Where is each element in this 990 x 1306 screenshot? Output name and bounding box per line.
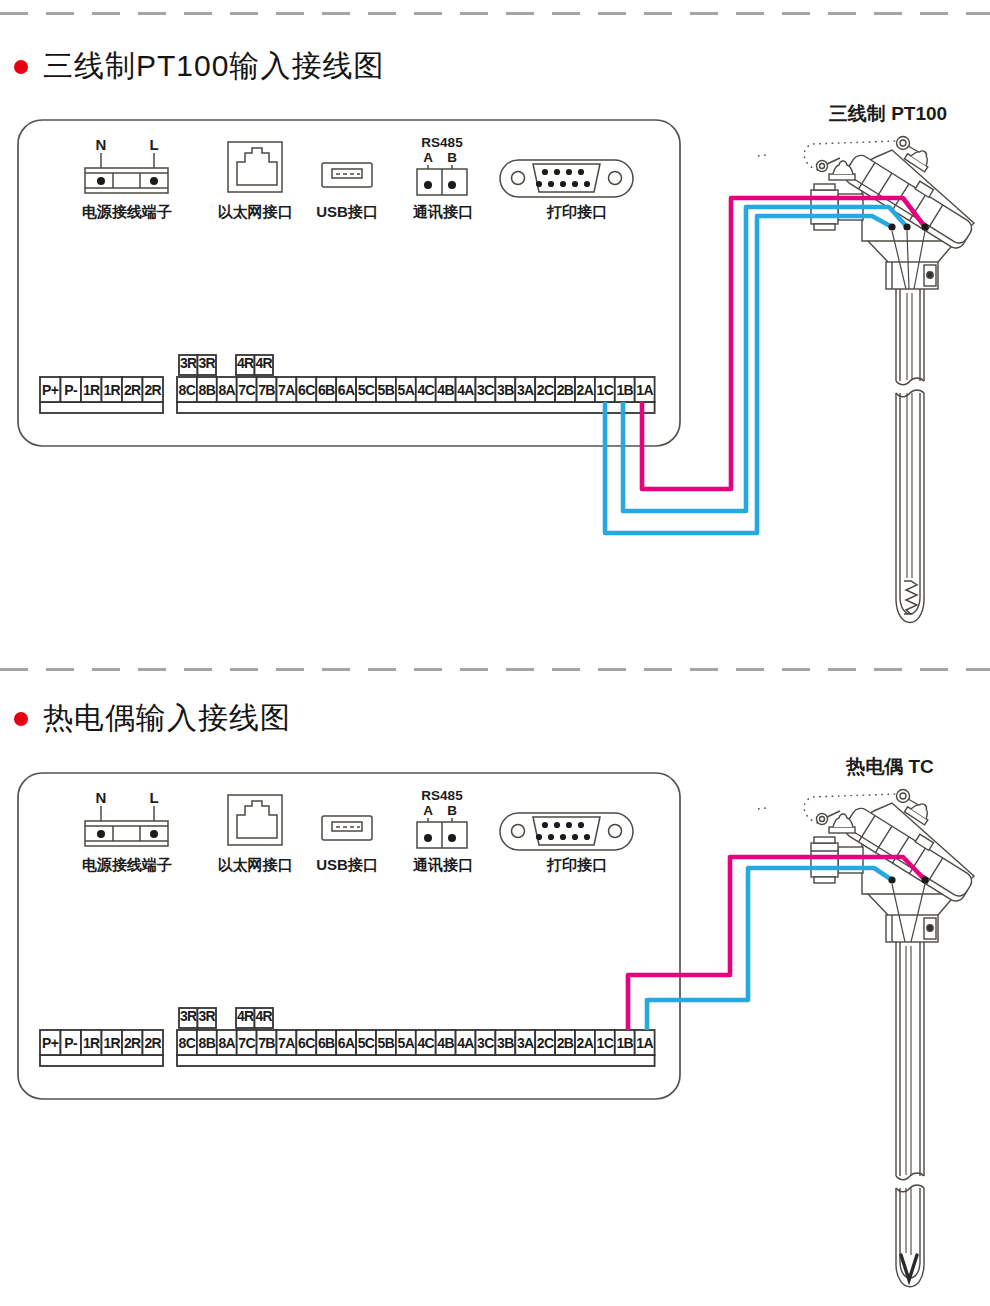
terminal-cell-label: 4A	[457, 382, 474, 398]
terminal-cell-label: 4A	[457, 1035, 474, 1051]
ethernet-port-icon: 以太网接口	[218, 795, 293, 873]
terminal-cell-label: 6B	[318, 382, 335, 398]
terminal-cell-label: 2B	[557, 1035, 574, 1051]
terminal-cell-label: 3B	[497, 382, 514, 398]
rs485-a-label: A	[423, 803, 433, 818]
diagram-pt100: N L 电源接线端子 以太网接口 USB接口 RS485 A B	[0, 0, 990, 653]
terminal-cell-label: 1C	[596, 1035, 613, 1051]
terminal-cell-label: 8C	[179, 1035, 196, 1051]
power-l-label: L	[149, 136, 158, 153]
terminal-cell-label: 4B	[437, 382, 454, 398]
terminal-cell-label: 1B	[616, 1035, 633, 1051]
terminal-cell-label: 2R	[124, 1035, 141, 1051]
power-n-label: N	[96, 136, 107, 153]
terminal-cell-label: 1R	[83, 1035, 100, 1051]
terminal-cell-label: 8B	[198, 382, 215, 398]
printer-port-label: 打印接口	[546, 856, 607, 873]
terminal-cell-label: 5A	[397, 382, 414, 398]
terminal-cell-label: 6A	[338, 382, 355, 398]
rs485-title: RS485	[421, 135, 463, 150]
sensor-terminal-dot	[888, 876, 895, 883]
sensor-terminal-dot	[921, 223, 928, 230]
terminal-cell-label: 8C	[179, 382, 196, 398]
cap-screw-left	[817, 158, 856, 180]
terminal-strip-base	[40, 402, 163, 413]
power-n-label: N	[96, 789, 107, 806]
power-terminal-label: 电源接线端子	[82, 203, 172, 220]
terminal-cell-label: 2R	[124, 382, 141, 398]
terminal-cell-label: 1R	[103, 1035, 120, 1051]
usb-label: USB接口	[316, 856, 378, 873]
terminal-cell-label: 3R	[180, 1008, 197, 1024]
terminal-cell-label: 7C	[238, 382, 255, 398]
power-terminal-label: 电源接线端子	[82, 856, 172, 873]
terminal-strip-base	[40, 1055, 163, 1066]
terminal-cell-label: 1B	[616, 382, 633, 398]
terminal-cell-label: 4R	[255, 355, 272, 371]
terminal-cell-label: 3C	[477, 382, 494, 398]
terminal-strip-main: 8C8B8A7C7B7A6C6B6A5C5B5A4C4B4A3C3B3A2C2B…	[177, 1030, 655, 1066]
terminal-cell-label: 3A	[517, 1035, 534, 1051]
usb-label: USB接口	[316, 203, 378, 220]
terminal-strip-left: P+P-1R1R2R2R	[40, 1030, 163, 1066]
terminal-cell-label: 6C	[298, 1035, 315, 1051]
ethernet-label: 以太网接口	[218, 203, 293, 220]
terminal-cell-label: 7C	[238, 1035, 255, 1051]
sensor-probe	[896, 289, 924, 623]
terminal-cell-label: 8B	[198, 1035, 215, 1051]
terminal-cell-label: 2C	[537, 382, 554, 398]
printer-port-label: 打印接口	[546, 203, 607, 220]
terminal-cell-label: 2R	[144, 382, 161, 398]
terminal-cell-label: 6C	[298, 382, 315, 398]
terminal-cell-label: 7A	[278, 382, 295, 398]
terminal-cell-label: 4B	[437, 1035, 454, 1051]
terminal-cell-label: 4R	[255, 1008, 272, 1024]
terminal-strip-left: P+P-1R1R2R2R	[40, 377, 163, 413]
terminal-cell-label: P+	[42, 1035, 59, 1051]
terminal-cell-label: 4C	[417, 1035, 434, 1051]
pt100-sensor-drawing	[758, 137, 979, 623]
terminal-strip-main: 8C8B8A7C7B7A6C6B6A5C5B5A4C4B4A3C3B3A2C2B…	[177, 377, 655, 413]
wiring-diagram-page: 三线制PT100输入接线图 热电偶输入接线图 N L 电源接线端子 以太网接口	[0, 0, 990, 1306]
terminal-cell-label: 6B	[318, 1035, 335, 1051]
terminal-cell-label: 8A	[218, 382, 235, 398]
rs485-b-label: B	[447, 150, 457, 165]
ethernet-port-icon: 以太网接口	[218, 142, 293, 220]
terminal-cell-label: 4R	[237, 355, 254, 371]
cable-gland-nut	[811, 837, 863, 883]
terminal-cell-label: 6A	[338, 1035, 355, 1051]
terminal-cell-label: 5B	[378, 382, 395, 398]
terminal-cell-label: 2C	[537, 1035, 554, 1051]
cap-screw-left	[817, 811, 856, 833]
terminal-cell-label: 1A	[636, 1035, 653, 1051]
terminal-cell-label: 5C	[358, 382, 375, 398]
terminal-cell-label: 3R	[180, 355, 197, 371]
terminal-cell-label: 4R	[237, 1008, 254, 1024]
terminal-cell-label: 2A	[577, 382, 594, 398]
terminal-cell-label: 1C	[596, 382, 613, 398]
comm-port-label: 通讯接口	[412, 856, 473, 873]
terminal-cell-label: 5A	[397, 1035, 414, 1051]
terminal-cell-label: P-	[64, 382, 78, 398]
comm-port-label: 通讯接口	[412, 203, 473, 220]
terminal-cell-label: 7B	[258, 1035, 275, 1051]
terminal-cell-label: 3B	[497, 1035, 514, 1051]
signal-wire-1A	[647, 868, 892, 1030]
terminal-cell-label: 5B	[378, 1035, 395, 1051]
rs485-title: RS485	[421, 788, 463, 803]
terminal-cell-label: 3A	[517, 382, 534, 398]
terminal-cell-label: 2B	[557, 382, 574, 398]
rs485-a-label: A	[423, 150, 433, 165]
terminal-cell-label: 3C	[477, 1035, 494, 1051]
terminal-cell-label: 2R	[144, 1035, 161, 1051]
sensor-terminal-dot	[903, 223, 910, 230]
terminal-cell-label: 2A	[577, 1035, 594, 1051]
terminal-cell-label: 1A	[636, 382, 653, 398]
terminal-cell-label: P-	[64, 1035, 78, 1051]
terminal-cell-label: 1R	[103, 382, 120, 398]
diagram-tc: N L 电源接线端子 以太网接口 USB接口 RS485 A B	[0, 653, 990, 1306]
terminal-strip-base	[177, 402, 655, 413]
terminal-cell-label: 3R	[198, 355, 215, 371]
sensor-type-label: 三线制 PT100	[829, 103, 947, 124]
terminal-cell-label: P+	[42, 382, 59, 398]
terminal-cell-label: 3R	[198, 1008, 215, 1024]
terminal-cell-label: 5C	[358, 1035, 375, 1051]
sensor-terminal-dot	[888, 223, 895, 230]
tc-sensor-drawing	[758, 790, 979, 1287]
terminal-cell-label: 7B	[258, 382, 275, 398]
terminal-strip-base	[177, 1055, 655, 1066]
terminal-cell-label: 7A	[278, 1035, 295, 1051]
sensor-probe	[896, 942, 924, 1287]
terminal-cell-label: 1R	[83, 382, 100, 398]
sensor-type-label: 热电偶 TC	[845, 756, 934, 777]
terminal-cell-label: 8A	[218, 1035, 235, 1051]
sensor-terminal-dot	[921, 876, 928, 883]
terminal-cell-label: 4C	[417, 382, 434, 398]
ethernet-label: 以太网接口	[218, 856, 293, 873]
rs485-b-label: B	[447, 803, 457, 818]
rtd-resistor-zigzag	[904, 581, 917, 614]
power-l-label: L	[149, 789, 158, 806]
